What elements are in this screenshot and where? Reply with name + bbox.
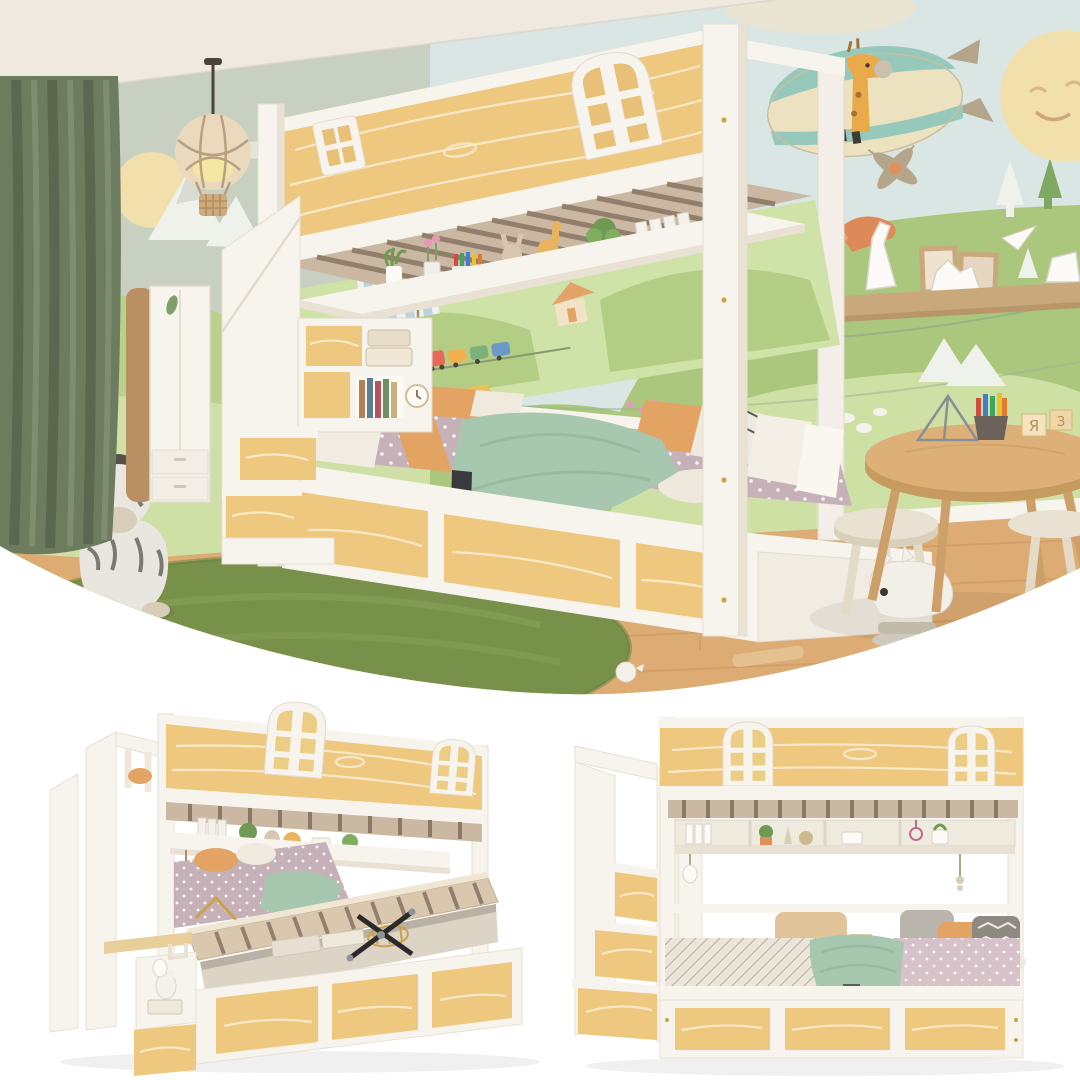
product-photo-lift-storage bbox=[20, 690, 540, 1080]
bed-right-post bbox=[703, 24, 747, 636]
storage-baskets bbox=[366, 330, 412, 366]
hanging-bunny bbox=[153, 959, 167, 977]
window-arched bbox=[430, 738, 477, 796]
wardrobe bbox=[126, 286, 210, 502]
stair-storage-column bbox=[104, 932, 196, 1076]
cubby-books bbox=[356, 376, 404, 418]
product-lift-scene bbox=[20, 690, 540, 1080]
suitcase bbox=[148, 1000, 182, 1014]
stair-cubby-unit bbox=[298, 318, 432, 432]
pencil-cup bbox=[974, 393, 1008, 440]
mid-shelf bbox=[675, 820, 1015, 891]
step-drawer bbox=[595, 930, 657, 982]
woven-ball bbox=[799, 831, 813, 845]
pillow bbox=[236, 843, 276, 865]
upper-slats bbox=[668, 800, 1018, 818]
window-arched bbox=[723, 722, 773, 786]
fascia bbox=[660, 718, 1023, 800]
hanging-beads bbox=[956, 854, 964, 891]
green-curtain bbox=[0, 76, 121, 554]
ground-shadow bbox=[585, 1056, 1065, 1076]
lifestyle-photo: Я З bbox=[0, 0, 1080, 700]
small-pillow bbox=[128, 768, 152, 784]
lifestyle-scene: Я З bbox=[0, 0, 1080, 700]
rear-rail bbox=[665, 904, 1020, 913]
step-drawer bbox=[615, 872, 657, 922]
ground-shadow bbox=[60, 1051, 540, 1073]
step-drawer bbox=[578, 988, 657, 1040]
pillow bbox=[194, 848, 238, 872]
cubby-drawer bbox=[306, 326, 362, 366]
block-letter: Я bbox=[1029, 417, 1039, 435]
block-letter: З bbox=[1057, 415, 1065, 430]
collage: Я З bbox=[0, 0, 1080, 1080]
drawer-base bbox=[660, 986, 1023, 1058]
product-front-scene bbox=[560, 690, 1080, 1080]
side-shelf-plank bbox=[104, 932, 192, 954]
cubby-drawer bbox=[304, 372, 350, 418]
window-arched bbox=[948, 726, 995, 786]
window-arched bbox=[264, 700, 327, 778]
product-photo-front-view bbox=[560, 690, 1080, 1080]
